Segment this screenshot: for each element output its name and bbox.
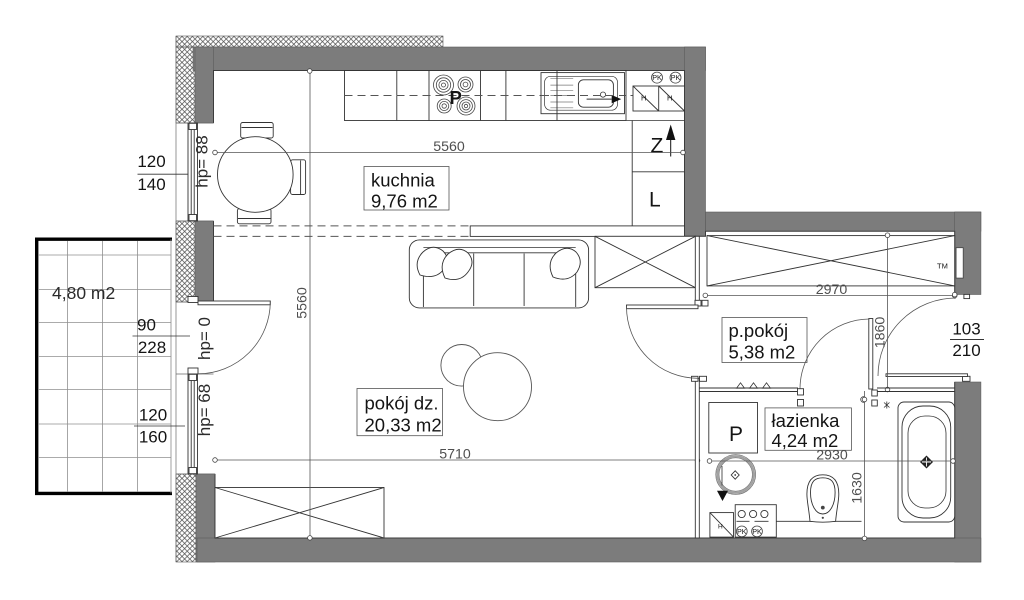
svg-text:20,33 m2: 20,33 m2	[365, 415, 442, 436]
svg-text:L: L	[649, 189, 661, 212]
svg-text:120: 120	[139, 406, 167, 425]
svg-text:hp= 68: hp= 68	[195, 384, 214, 436]
svg-text:228: 228	[138, 338, 166, 357]
svg-text:4,80 m2: 4,80 m2	[52, 283, 115, 303]
svg-text:1630: 1630	[850, 472, 866, 504]
svg-text:2930: 2930	[816, 447, 848, 463]
svg-text:9,76 m2: 9,76 m2	[371, 190, 438, 211]
svg-text:H: H	[641, 94, 646, 103]
svg-text:P: P	[450, 87, 462, 108]
svg-text:103: 103	[952, 320, 980, 339]
svg-text:Z: Z	[651, 135, 664, 158]
svg-text:H: H	[667, 94, 672, 103]
svg-text:TM: TM	[937, 262, 948, 271]
svg-text:pokój dz.: pokój dz.	[365, 393, 439, 414]
svg-text:2970: 2970	[816, 282, 848, 298]
svg-text:PK: PK	[752, 527, 762, 536]
svg-text:5560: 5560	[433, 139, 465, 155]
svg-text:120: 120	[137, 152, 165, 171]
svg-text:hp= 0: hp= 0	[195, 317, 214, 360]
svg-text:160: 160	[139, 428, 167, 447]
svg-text:łazienka: łazienka	[772, 410, 841, 431]
svg-text:PK: PK	[737, 527, 747, 536]
svg-text:5,38 m2: 5,38 m2	[729, 342, 796, 363]
svg-text:p.pokój: p.pokój	[729, 320, 789, 341]
svg-text:PK: PK	[652, 73, 662, 82]
svg-text:kuchnia: kuchnia	[371, 169, 435, 190]
svg-text:140: 140	[137, 175, 165, 194]
svg-text:hp= 88: hp= 88	[193, 135, 212, 187]
svg-text:5560: 5560	[295, 287, 311, 319]
svg-text:90: 90	[137, 316, 156, 335]
svg-text:210: 210	[952, 341, 980, 360]
svg-text:1860: 1860	[873, 317, 889, 349]
svg-text:P: P	[729, 423, 743, 446]
svg-text:5710: 5710	[439, 447, 471, 463]
svg-text:H: H	[718, 524, 723, 531]
svg-text:PK: PK	[671, 73, 681, 82]
